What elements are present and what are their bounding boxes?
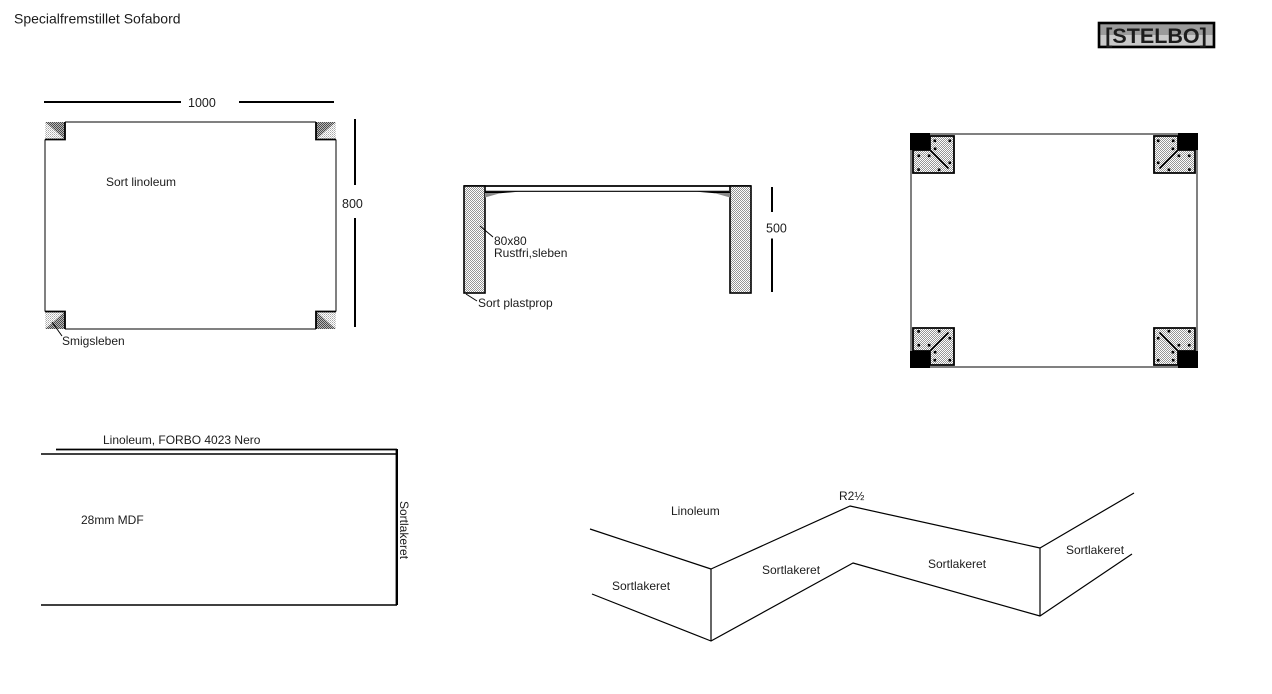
svg-text:1000: 1000	[188, 96, 216, 110]
svg-text:500: 500	[766, 222, 787, 236]
svg-text:800: 800	[342, 197, 363, 211]
svg-text:Sortlakeret: Sortlakeret	[1066, 543, 1125, 557]
svg-text:Sortlakeret: Sortlakeret	[928, 557, 987, 571]
svg-text:Sort plastprop: Sort plastprop	[478, 296, 553, 310]
svg-text:R2½: R2½	[839, 489, 864, 503]
svg-text:Linoleum, FORBO 4023 Nero: Linoleum, FORBO 4023 Nero	[103, 433, 261, 447]
svg-text:Sortlakeret: Sortlakeret	[762, 563, 821, 577]
svg-text:Sort linoleum: Sort linoleum	[106, 175, 176, 189]
svg-text:Sortlakeret: Sortlakeret	[397, 501, 411, 560]
svg-text:Smigsleben: Smigsleben	[62, 334, 125, 348]
svg-text:28mm MDF: 28mm MDF	[81, 513, 144, 527]
svg-text:Rustfri,sleben: Rustfri,sleben	[494, 246, 567, 260]
svg-text:Linoleum: Linoleum	[671, 504, 720, 518]
svg-text:Specialfremstillet Sofabord: Specialfremstillet Sofabord	[14, 11, 181, 27]
svg-text:Sortlakeret: Sortlakeret	[612, 579, 671, 593]
svg-text:[STELBO]: [STELBO]	[1105, 24, 1207, 48]
